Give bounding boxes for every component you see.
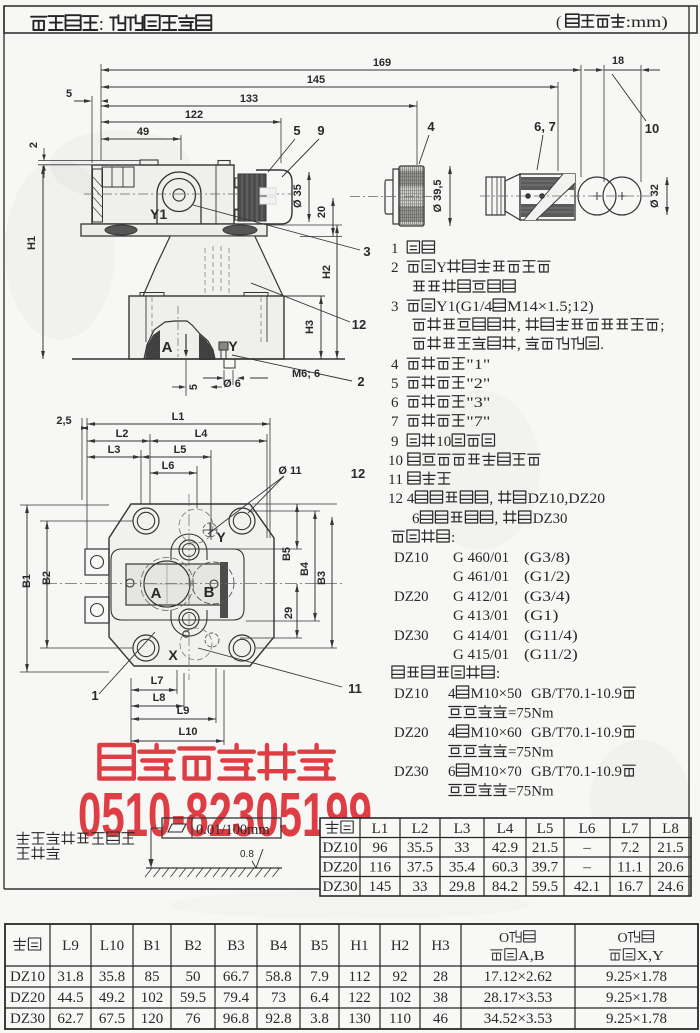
svg-text:H2: H2 — [391, 938, 409, 954]
svg-text:66.7: 66.7 — [223, 969, 250, 985]
svg-text:6: 6 — [412, 511, 420, 527]
svg-text:9.25×1.78: 9.25×1.78 — [606, 990, 667, 1006]
svg-text:L1: L1 — [372, 821, 389, 837]
svg-text:(G3/4): (G3/4) — [524, 589, 570, 605]
svg-text:10: 10 — [436, 434, 451, 450]
svg-text:G 412/01: G 412/01 — [453, 589, 509, 605]
svg-text:4: 4 — [391, 357, 399, 373]
svg-text:96.8: 96.8 — [223, 1011, 249, 1027]
svg-text:0.01/100mm: 0.01/100mm — [196, 822, 270, 838]
svg-text:5: 5 — [66, 88, 72, 100]
svg-text:39.7: 39.7 — [532, 860, 559, 876]
svg-text:58.8: 58.8 — [265, 969, 291, 985]
svg-text:12: 12 — [352, 317, 366, 332]
svg-text:3: 3 — [363, 244, 370, 259]
svg-text:(: ( — [556, 14, 561, 31]
svg-text:122: 122 — [348, 990, 371, 1006]
svg-text:18: 18 — [612, 55, 624, 67]
svg-text:35.4: 35.4 — [449, 860, 476, 876]
svg-text:"2": "2" — [466, 376, 490, 392]
svg-text:DZ30: DZ30 — [323, 879, 358, 895]
svg-text:2,5: 2,5 — [56, 415, 71, 427]
svg-text:H3: H3 — [431, 938, 449, 954]
svg-text:L6: L6 — [579, 821, 596, 837]
svg-text:6.4: 6.4 — [310, 990, 329, 1006]
svg-text:L6: L6 — [162, 460, 175, 472]
svg-text:A: A — [162, 339, 173, 356]
svg-text:145: 145 — [369, 879, 392, 895]
svg-text:17.12×2.62: 17.12×2.62 — [484, 969, 552, 985]
svg-text:;: ; — [660, 318, 664, 334]
svg-text:42.1: 42.1 — [574, 879, 600, 895]
svg-text:110: 110 — [389, 1011, 411, 1027]
svg-text:L10: L10 — [179, 726, 198, 738]
svg-text:5: 5 — [293, 123, 300, 138]
svg-text::: : — [451, 530, 455, 546]
svg-text:116: 116 — [369, 860, 391, 876]
svg-text:,: , — [495, 511, 499, 527]
svg-text:35.8: 35.8 — [99, 969, 125, 985]
svg-text:33: 33 — [455, 840, 470, 856]
svg-text:,: , — [489, 491, 493, 507]
svg-text:M10×60: M10×60 — [471, 725, 522, 741]
svg-text:M6; 6: M6; 6 — [292, 368, 320, 380]
svg-text:120: 120 — [141, 1011, 164, 1027]
svg-text:L8: L8 — [153, 692, 166, 704]
svg-text:10: 10 — [388, 453, 403, 469]
svg-text:B: B — [204, 584, 215, 601]
svg-text:35.5: 35.5 — [407, 840, 433, 856]
svg-text:24.6: 24.6 — [657, 879, 684, 895]
svg-text:9.25×1.78: 9.25×1.78 — [606, 1011, 667, 1027]
svg-text:GB/T70.1-10.9: GB/T70.1-10.9 — [531, 764, 622, 780]
svg-text:133: 133 — [240, 93, 258, 105]
svg-text:92: 92 — [393, 969, 408, 985]
svg-text:=75Nm: =75Nm — [508, 706, 554, 722]
svg-text:Ø 35: Ø 35 — [292, 184, 304, 208]
svg-text:34.52×3.53: 34.52×3.53 — [484, 1011, 552, 1027]
svg-text:DZ10: DZ10 — [394, 550, 429, 566]
svg-text:G 414/01: G 414/01 — [453, 628, 509, 644]
svg-text:DZ30: DZ30 — [533, 511, 568, 527]
svg-text:10: 10 — [645, 121, 659, 136]
svg-text:60.3: 60.3 — [492, 860, 518, 876]
svg-text:38: 38 — [433, 990, 448, 1006]
svg-text:20.6: 20.6 — [657, 860, 684, 876]
svg-text:5: 5 — [391, 376, 399, 392]
svg-text:L2: L2 — [116, 428, 129, 440]
svg-text:29: 29 — [283, 607, 295, 619]
svg-text:O: O — [618, 931, 628, 946]
svg-text:H2: H2 — [321, 265, 333, 279]
svg-text:11.1: 11.1 — [617, 860, 643, 876]
svg-text:H3: H3 — [304, 320, 316, 334]
svg-text:Ø 11: Ø 11 — [278, 465, 301, 477]
svg-text:29.8: 29.8 — [449, 879, 475, 895]
svg-text:31.8: 31.8 — [57, 969, 83, 985]
svg-text:L5: L5 — [537, 821, 554, 837]
svg-text:DZ10: DZ10 — [323, 840, 358, 856]
svg-text:16.7: 16.7 — [617, 879, 644, 895]
svg-text:B1: B1 — [143, 938, 161, 954]
svg-text:49.2: 49.2 — [99, 990, 125, 1006]
svg-text:0.8: 0.8 — [240, 849, 254, 860]
svg-text:B4: B4 — [299, 561, 311, 576]
svg-text:L4: L4 — [497, 821, 514, 837]
svg-text:11: 11 — [348, 681, 362, 696]
svg-text:L8: L8 — [662, 821, 679, 837]
svg-text:46: 46 — [433, 1011, 449, 1027]
svg-text:L2: L2 — [412, 821, 429, 837]
svg-text:L9: L9 — [177, 705, 190, 717]
svg-text:DZ20: DZ20 — [10, 990, 45, 1006]
svg-text:DZ20: DZ20 — [323, 860, 358, 876]
svg-text:DZ30: DZ30 — [394, 628, 429, 644]
svg-text:4: 4 — [448, 725, 456, 741]
svg-text:122: 122 — [185, 109, 203, 121]
svg-text:DZ30: DZ30 — [394, 764, 429, 780]
svg-text:DZ10: DZ10 — [394, 686, 429, 702]
svg-text:=75Nm: =75Nm — [508, 784, 554, 800]
svg-text:169: 169 — [373, 57, 391, 69]
svg-text:21.5: 21.5 — [532, 840, 558, 856]
svg-text:B3: B3 — [227, 938, 245, 954]
svg-text:G 415/01: G 415/01 — [453, 647, 509, 663]
svg-text:L10: L10 — [100, 938, 124, 954]
svg-text:6: 6 — [448, 764, 456, 780]
svg-text:73: 73 — [271, 990, 286, 1006]
svg-text:–: – — [582, 840, 591, 856]
svg-text:44.5: 44.5 — [57, 990, 83, 1006]
svg-text:145: 145 — [307, 74, 325, 86]
svg-text:59.5: 59.5 — [180, 990, 206, 1006]
svg-text:=75Nm: =75Nm — [508, 745, 554, 761]
svg-text:2: 2 — [391, 260, 399, 276]
svg-text:X,Y: X,Y — [637, 949, 664, 964]
svg-text:5: 5 — [188, 384, 200, 390]
svg-text:42.9: 42.9 — [492, 840, 518, 856]
svg-text:L9: L9 — [62, 938, 79, 954]
svg-text:DZ30: DZ30 — [10, 1011, 45, 1027]
svg-text:7.2: 7.2 — [621, 840, 640, 856]
svg-text:96: 96 — [373, 840, 389, 856]
svg-text:B2: B2 — [41, 571, 53, 585]
svg-text:11: 11 — [388, 472, 403, 488]
svg-text:B2: B2 — [184, 938, 202, 954]
svg-text::: : — [496, 666, 500, 682]
svg-text:L3: L3 — [454, 821, 471, 837]
svg-text:G 413/01: G 413/01 — [453, 608, 509, 624]
svg-text:33: 33 — [413, 879, 428, 895]
svg-text:DZ20: DZ20 — [394, 589, 429, 605]
svg-text:M10×50: M10×50 — [471, 686, 522, 702]
svg-text:B5: B5 — [311, 938, 329, 954]
svg-text:6, 7: 6, 7 — [534, 119, 556, 134]
svg-text:B1: B1 — [21, 574, 33, 588]
svg-text:62.7: 62.7 — [57, 1011, 84, 1027]
svg-text:Y: Y — [228, 338, 238, 354]
svg-text:O: O — [499, 931, 509, 946]
svg-text:"3": "3" — [466, 395, 490, 411]
svg-text:M10×70: M10×70 — [471, 764, 522, 780]
svg-text:6: 6 — [391, 395, 399, 411]
svg-text:76: 76 — [186, 1011, 202, 1027]
svg-text:A: A — [151, 585, 162, 602]
svg-text:M14×1.5;12): M14×1.5;12) — [507, 299, 594, 315]
svg-text:Y: Y — [436, 260, 447, 276]
svg-text:49: 49 — [137, 126, 149, 138]
svg-text:,: , — [517, 337, 521, 353]
svg-text:L3: L3 — [108, 444, 121, 456]
svg-text:12 4: 12 4 — [388, 491, 415, 507]
svg-text:A,B: A,B — [518, 949, 545, 964]
svg-text:L7: L7 — [151, 675, 164, 687]
svg-text:112: 112 — [349, 969, 371, 985]
svg-text::mm): :mm) — [626, 14, 668, 31]
svg-text:Y1: Y1 — [150, 206, 167, 222]
svg-text:DZ20: DZ20 — [394, 725, 429, 741]
svg-text:X: X — [168, 647, 178, 663]
svg-text:B3: B3 — [316, 571, 328, 585]
svg-text:84.2: 84.2 — [492, 879, 518, 895]
svg-text:79.4: 79.4 — [223, 990, 250, 1006]
svg-text:59.5: 59.5 — [532, 879, 558, 895]
svg-text:"7": "7" — [466, 414, 490, 430]
svg-text:12: 12 — [351, 466, 365, 481]
svg-text:B4: B4 — [270, 938, 288, 954]
svg-text:(G11/2): (G11/2) — [524, 647, 578, 663]
svg-text:50: 50 — [186, 969, 201, 985]
svg-text:1: 1 — [391, 241, 399, 257]
svg-text:H1: H1 — [350, 938, 368, 954]
svg-text:DZ10,DZ20: DZ10,DZ20 — [528, 491, 606, 507]
svg-text:130: 130 — [348, 1011, 371, 1027]
svg-text:4: 4 — [427, 119, 435, 134]
svg-text:–: – — [582, 860, 591, 876]
svg-text:GB/T70.1-10.9: GB/T70.1-10.9 — [531, 686, 622, 702]
svg-text:7: 7 — [391, 414, 399, 430]
svg-text:L7: L7 — [622, 821, 639, 837]
svg-text:(G1): (G1) — [524, 608, 559, 624]
svg-text:,: , — [517, 318, 521, 334]
svg-text:H1: H1 — [26, 236, 38, 250]
svg-text:Y1(G1/4: Y1(G1/4 — [436, 299, 493, 315]
svg-text:7.9: 7.9 — [310, 969, 329, 985]
svg-text:37.5: 37.5 — [407, 860, 433, 876]
svg-text:G 461/01: G 461/01 — [453, 569, 509, 585]
svg-text:102: 102 — [389, 990, 412, 1006]
svg-text:(G3/8): (G3/8) — [524, 550, 570, 566]
svg-text:67.5: 67.5 — [99, 1011, 125, 1027]
svg-text:DZ10: DZ10 — [10, 969, 45, 985]
svg-text:1: 1 — [91, 688, 98, 703]
svg-text:3.8: 3.8 — [310, 1011, 329, 1027]
svg-text:(G1/2): (G1/2) — [524, 569, 570, 585]
svg-text:3: 3 — [391, 299, 399, 315]
svg-text:85: 85 — [145, 969, 160, 985]
svg-text:Ø 39,5: Ø 39,5 — [432, 179, 444, 212]
svg-text:20: 20 — [316, 206, 328, 218]
svg-text::: : — [99, 15, 104, 35]
svg-text:Ø 32: Ø 32 — [649, 184, 661, 208]
svg-text:21.5: 21.5 — [657, 840, 683, 856]
svg-text:9: 9 — [317, 123, 324, 138]
svg-text:G 460/01: G 460/01 — [453, 550, 509, 566]
svg-text:L5: L5 — [174, 444, 187, 456]
svg-text:GB/T70.1-10.9: GB/T70.1-10.9 — [531, 725, 622, 741]
svg-text:2: 2 — [28, 142, 40, 148]
svg-text:2: 2 — [357, 374, 364, 389]
svg-text:L1: L1 — [172, 411, 185, 423]
svg-text:Y: Y — [216, 529, 226, 545]
svg-text:.: . — [600, 337, 604, 353]
svg-text:9: 9 — [391, 434, 399, 450]
svg-text:Ø 6: Ø 6 — [223, 378, 241, 390]
svg-text:(G11/4): (G11/4) — [524, 628, 578, 644]
svg-text:9.25×1.78: 9.25×1.78 — [606, 969, 667, 985]
svg-text:L4: L4 — [195, 428, 209, 440]
svg-text:"1": "1" — [466, 357, 490, 373]
svg-text:28.17×3.53: 28.17×3.53 — [484, 990, 552, 1006]
svg-text:102: 102 — [141, 990, 164, 1006]
svg-text:28: 28 — [433, 969, 448, 985]
svg-text:92.8: 92.8 — [265, 1011, 291, 1027]
svg-text:4: 4 — [448, 686, 456, 702]
